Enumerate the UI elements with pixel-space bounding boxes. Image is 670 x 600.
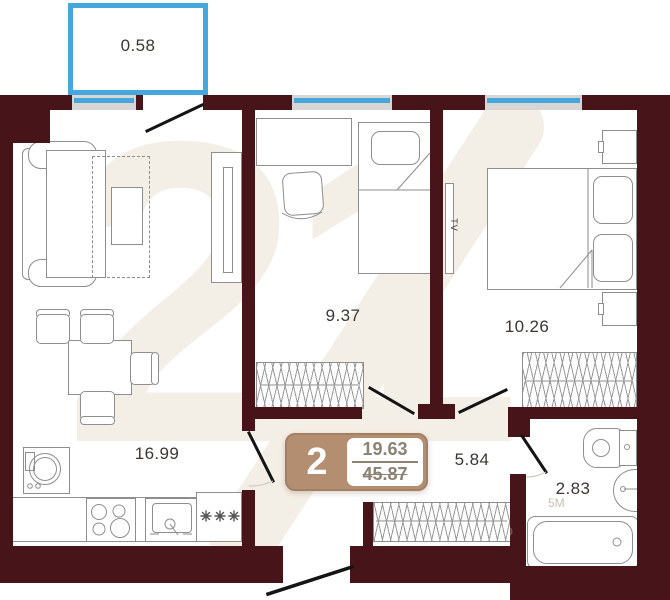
desk-chair-base bbox=[282, 212, 322, 219]
washer-knob-icon bbox=[28, 484, 33, 489]
burner-icon bbox=[92, 505, 107, 520]
bathtub-drain-icon bbox=[613, 538, 621, 546]
living-hall-door-swing bbox=[249, 433, 273, 481]
bathroom-door-swing bbox=[522, 436, 546, 472]
bathroom-door-arc bbox=[526, 472, 546, 477]
badge-areas-pane: 19.63 45.87 bbox=[347, 438, 423, 486]
washer-door-icon bbox=[30, 454, 61, 485]
fridge-asterisks-icon bbox=[201, 511, 239, 521]
badge-total-area: 45.87 bbox=[362, 464, 407, 485]
entry-door-swing bbox=[268, 567, 352, 594]
line-overlay bbox=[0, 0, 670, 600]
area-badge: 2 19.63 45.87 bbox=[285, 433, 428, 491]
badge-living-area: 19.63 bbox=[352, 439, 417, 463]
burner-icon bbox=[93, 523, 105, 535]
washer-knob-icon bbox=[36, 484, 41, 489]
master-bedroom-door-swing bbox=[460, 390, 506, 412]
single-bed-blanket-fold bbox=[358, 153, 430, 190]
badge-room-count: 2 bbox=[287, 435, 347, 489]
kitchen-faucet-lever bbox=[150, 524, 192, 535]
double-bed-blanket-fold bbox=[560, 250, 592, 288]
floor-plan-canvas: 21 0.58 bbox=[0, 0, 670, 600]
bedroom-door-swing bbox=[370, 388, 413, 413]
burner-icon bbox=[113, 505, 125, 517]
living-door-arc bbox=[249, 481, 273, 486]
toilet-flush-button bbox=[625, 445, 630, 450]
washer-door-inner-icon bbox=[34, 458, 57, 481]
burner-icon bbox=[111, 519, 130, 538]
balcony-door-swing bbox=[147, 105, 202, 131]
